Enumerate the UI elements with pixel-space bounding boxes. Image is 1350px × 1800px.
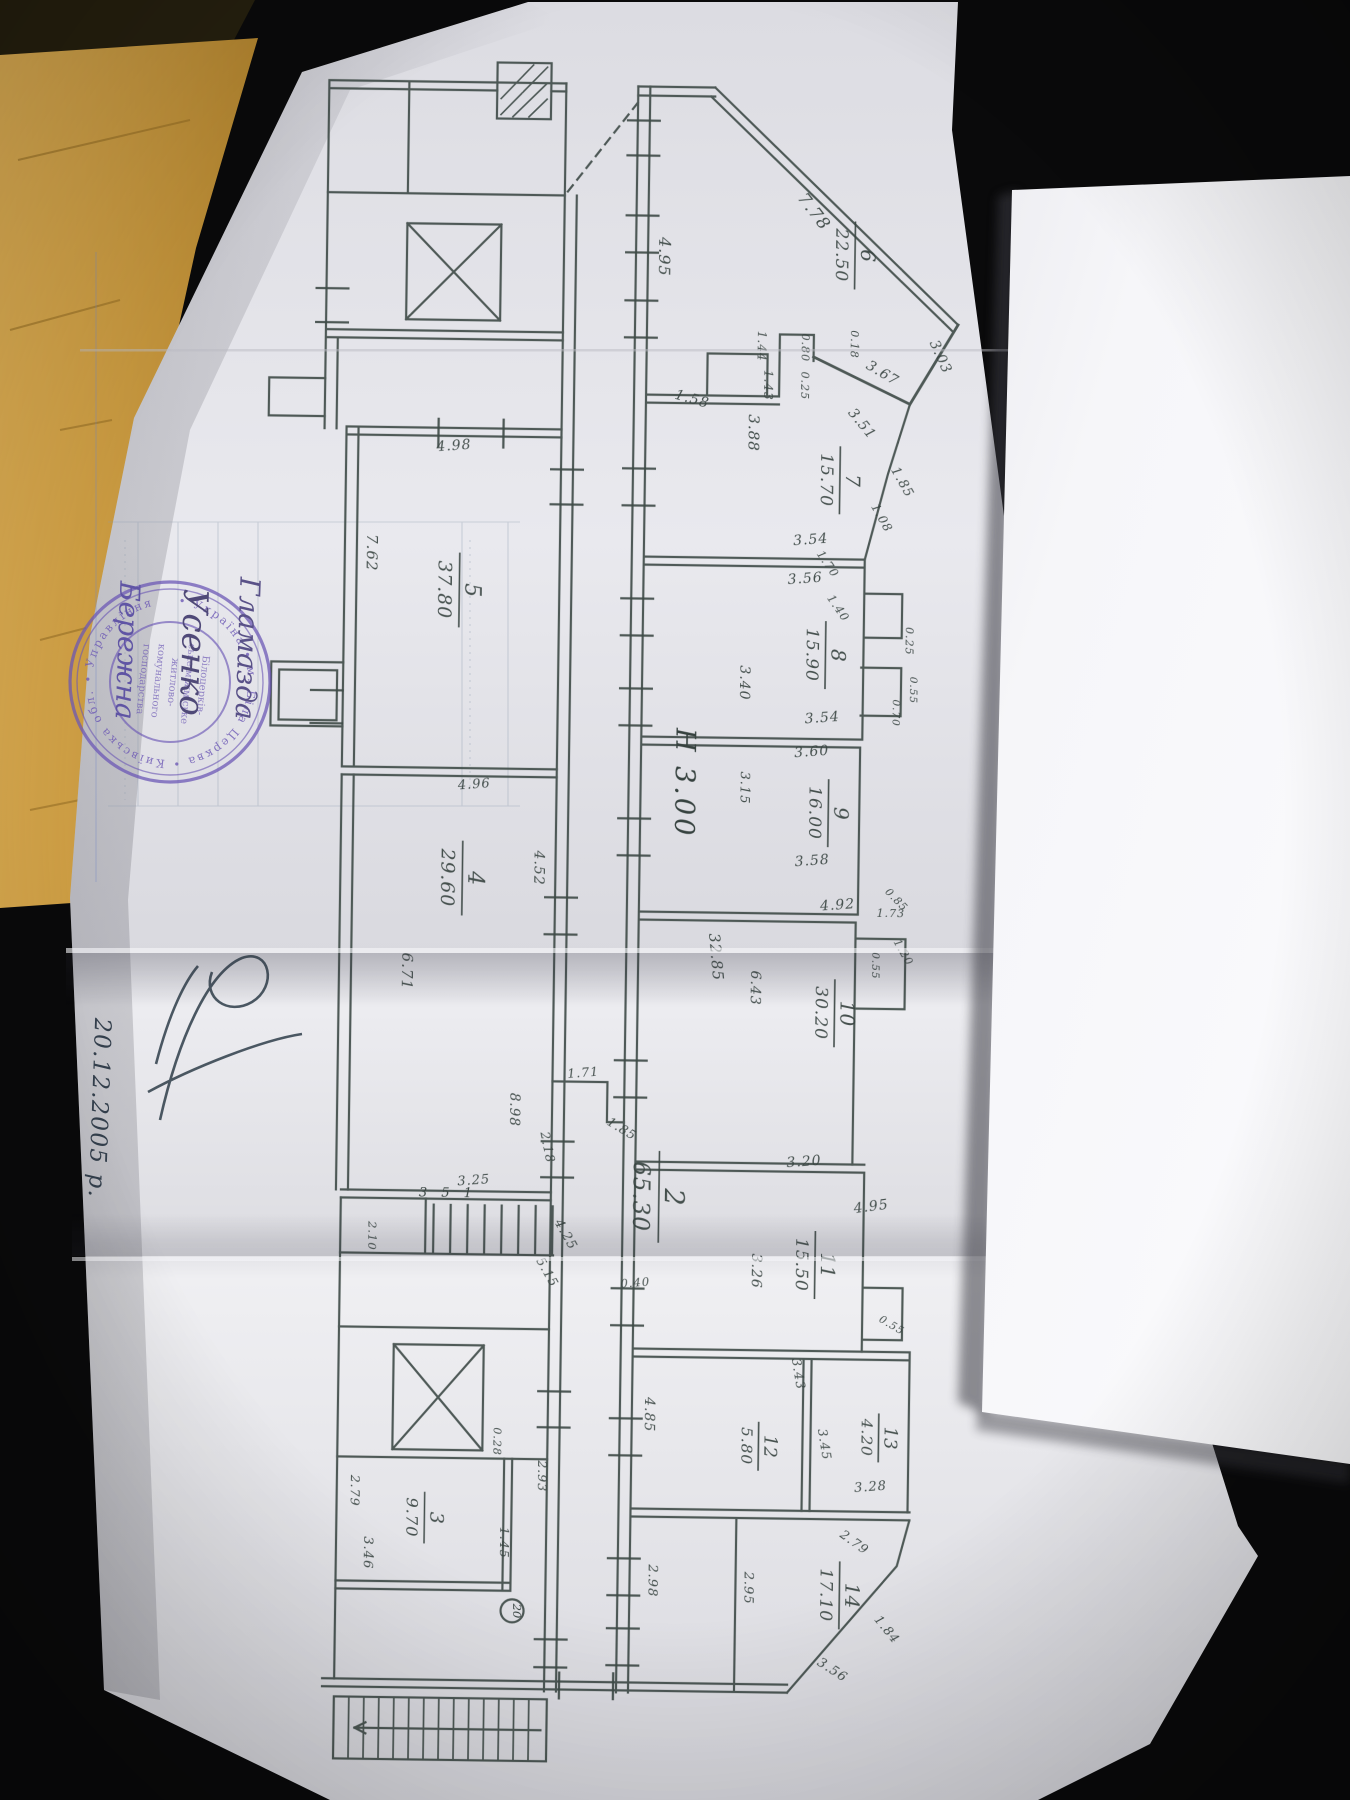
photo-vignette [0, 0, 1350, 1800]
photo-of-floor-plan-document: 7.784.953.033.671.440.800.181.430.251.58… [0, 0, 1350, 1800]
scene: 7.784.953.033.671.440.800.181.430.251.58… [0, 0, 1350, 1800]
